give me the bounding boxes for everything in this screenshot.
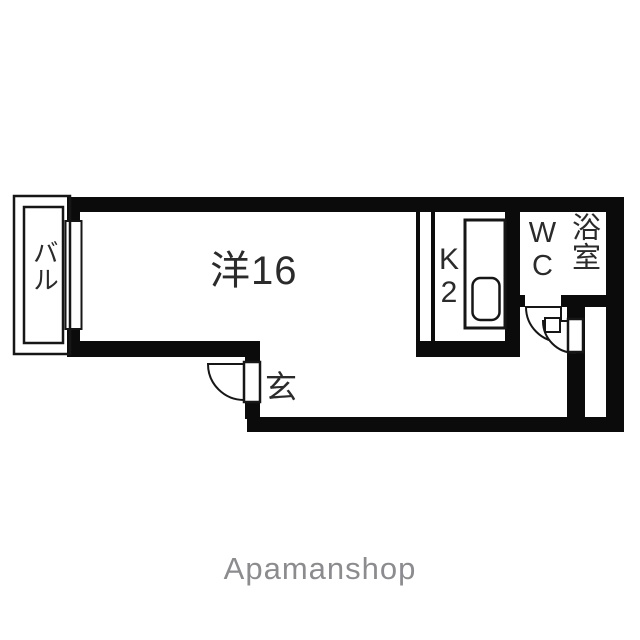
kitchen-label: K2 [433, 243, 465, 309]
step-fixture [545, 318, 560, 332]
wall-right [606, 197, 624, 432]
wall-bottom [247, 417, 624, 432]
wall-entrance-lower [245, 402, 260, 419]
wall-bath-bottom-right [560, 295, 606, 307]
entrance-door-leaf [244, 362, 260, 402]
wc-label: WC [527, 217, 557, 283]
closet-door-leaf [568, 319, 583, 352]
entrance-label: 玄 [265, 371, 298, 405]
wall-bath-bottom-left [520, 295, 525, 307]
living-room-label: 洋16 [210, 250, 298, 292]
balcony-window [66, 221, 82, 329]
apamanshop-wordmark: Apamanshop [0, 551, 640, 587]
wall-kitchen-bath-divider [505, 212, 520, 357]
floorplan-drawing [0, 0, 640, 640]
entrance-door-arc [208, 364, 244, 400]
balcony-label: バル [30, 239, 57, 293]
wall-living-bottom [67, 341, 260, 357]
bath-doorway [525, 294, 561, 308]
wall-top [67, 197, 624, 212]
partition-line-left [416, 212, 420, 341]
floorplan-image: バル 洋16 玄 K2 WC 浴室 Apamanshop [0, 0, 640, 640]
kitchen-sink [473, 278, 500, 320]
wall-entrance-upper [245, 341, 260, 363]
wall-kitchen-bottom [416, 341, 520, 357]
bath-label: 浴室 [568, 212, 598, 272]
